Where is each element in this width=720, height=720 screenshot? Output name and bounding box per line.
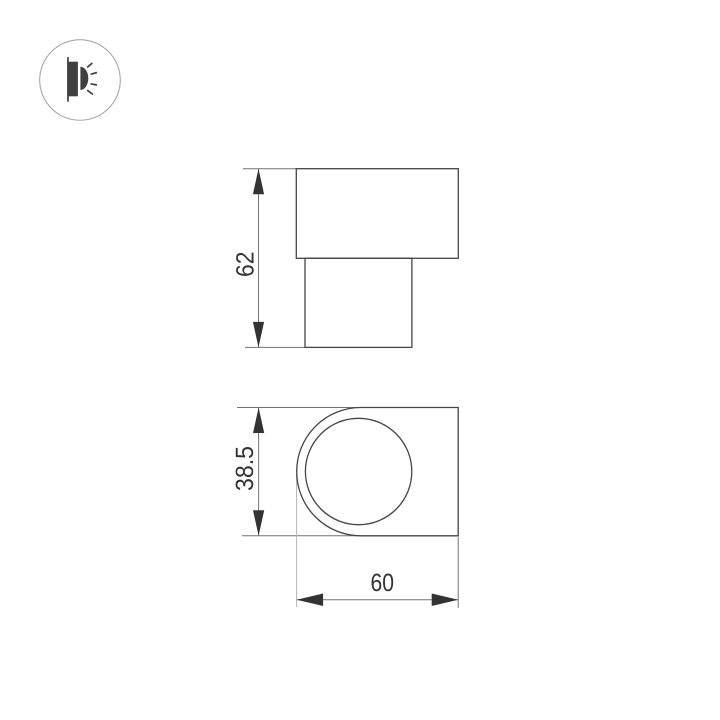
svg-text:60: 60 [371, 569, 395, 597]
svg-text:62: 62 [232, 252, 260, 278]
svg-text:38.5: 38.5 [231, 446, 259, 491]
